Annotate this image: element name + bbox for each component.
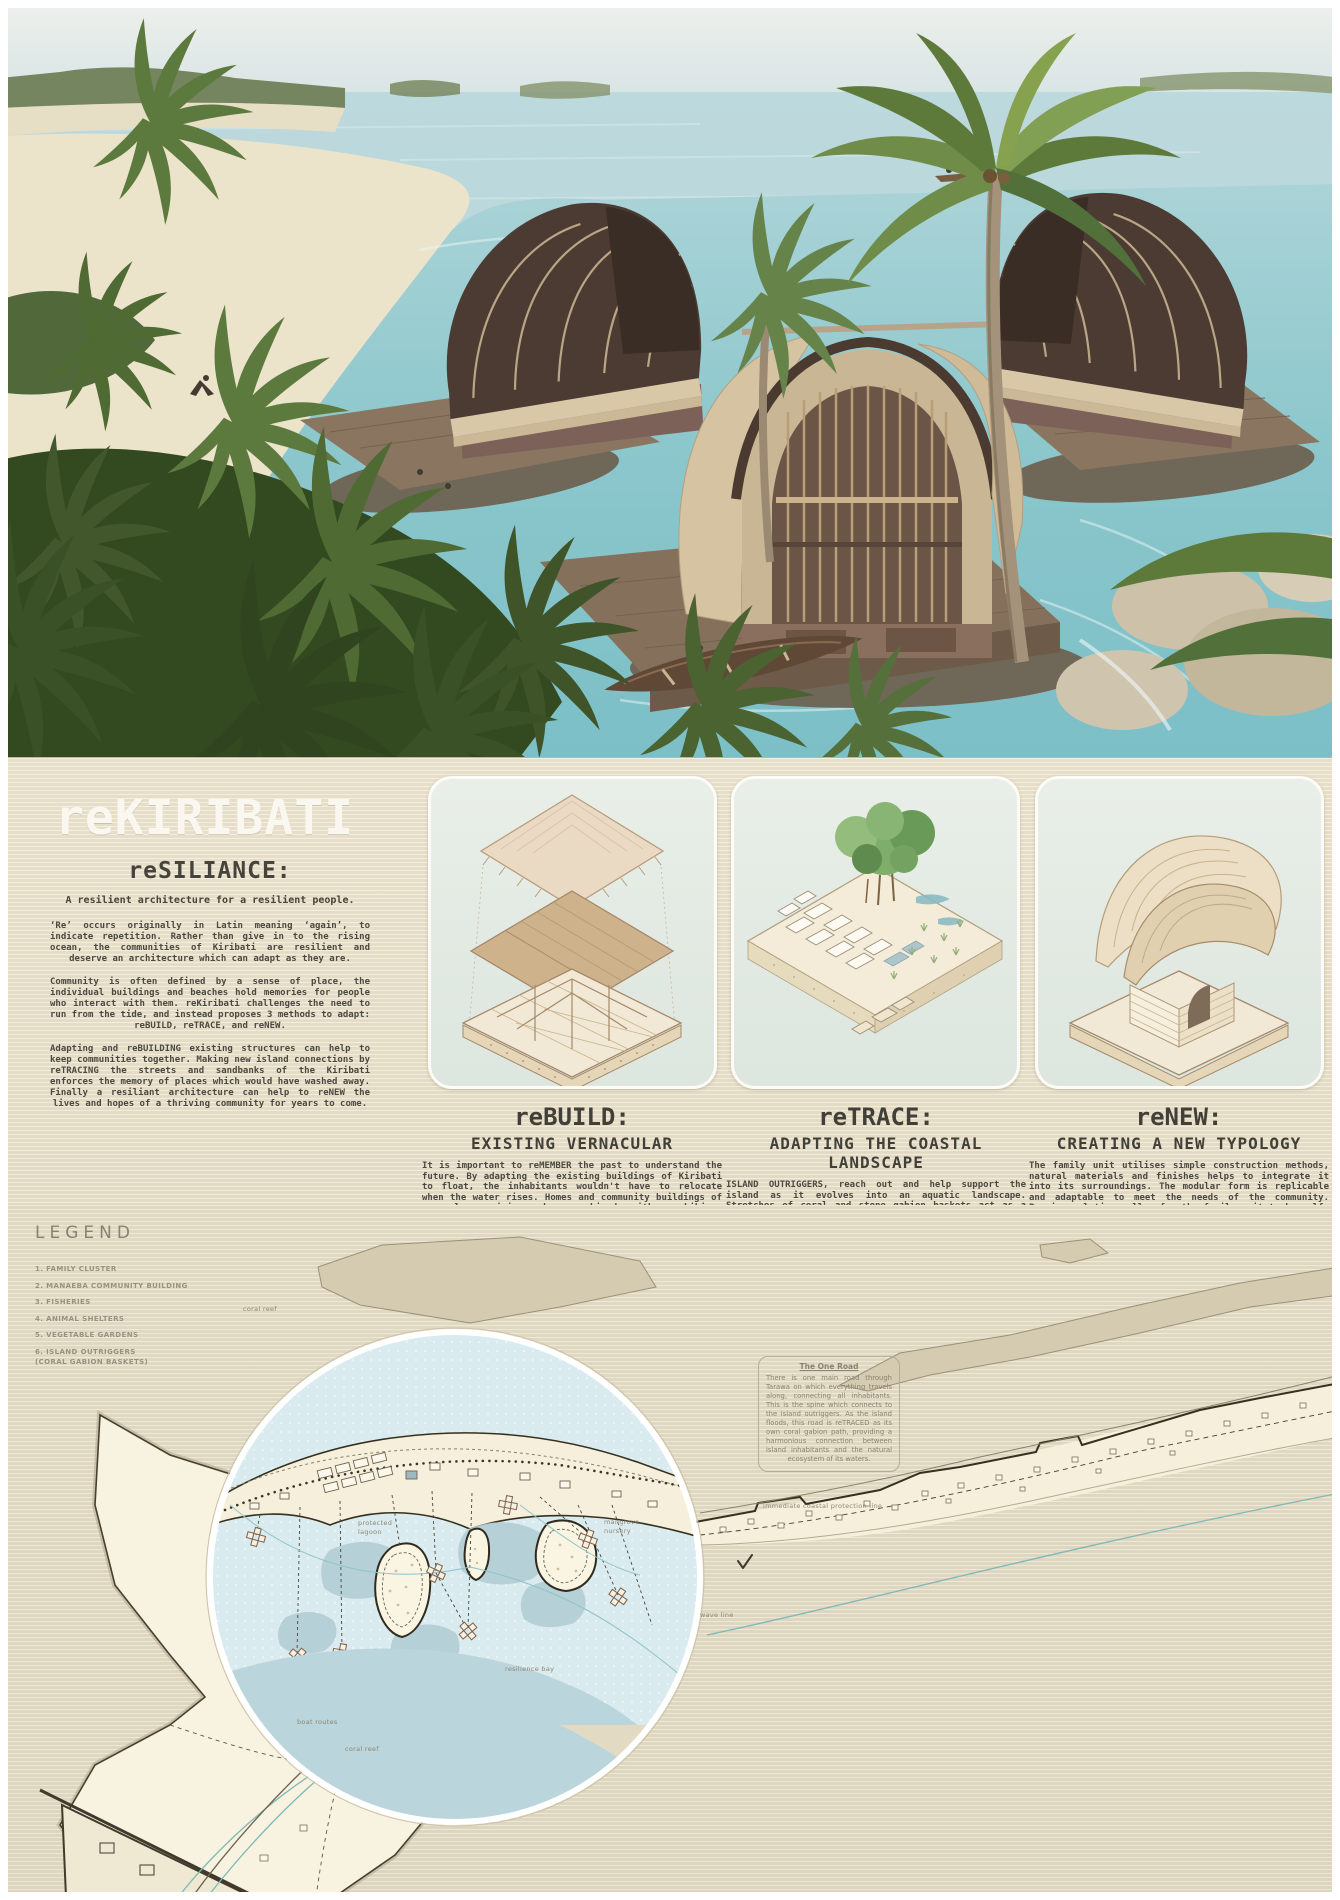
hero-illustration (0, 0, 1340, 757)
competition-board: reKIRIBATI reSILIANCE: A resilient archi… (0, 0, 1340, 1900)
one-road-note: The One Road There is one main road thro… (758, 1356, 900, 1472)
hero-rendering (0, 0, 1340, 757)
retrace-title: reTRACE: (726, 1103, 1026, 1131)
center-hut (679, 334, 1023, 658)
renew-panel (1035, 776, 1324, 1089)
retrace-panel (731, 776, 1020, 1089)
renew-title: reNEW: (1029, 1103, 1329, 1131)
legend-item-note: (CORAL GABION BASKETS) (35, 1358, 188, 1366)
legend-item: 6. ISLAND OUTRIGGERS (35, 1348, 188, 1356)
masterplan-map (0, 1205, 1340, 1900)
bird-mark (738, 1555, 752, 1568)
rebuild-title: reBUILD: (422, 1103, 722, 1131)
resilience-heading: reSILIANCE: (50, 858, 370, 884)
concept-section: reKIRIBATI reSILIANCE: A resilient archi… (0, 757, 1340, 1205)
retrace-isometric-diagram (734, 779, 1017, 1086)
legend-item: 1. FAMILY CLUSTER (35, 1265, 188, 1273)
rebuild-panel (428, 776, 717, 1089)
legend-title: LEGEND (35, 1223, 188, 1243)
intro-paragraph: Adapting and reBUILDING existing structu… (50, 1044, 370, 1110)
rebuild-axonometric-diagram (431, 779, 714, 1086)
curved-roof-shells (1096, 836, 1281, 985)
rebuild-subtitle: EXISTING VERNACULAR (422, 1134, 722, 1153)
intro-paragraph: Community is often defined by a sense of… (50, 977, 370, 1032)
legend-item: 3. FISHERIES (35, 1298, 188, 1306)
legend: LEGEND 1. FAMILY CLUSTER 2. MANAEBA COMM… (35, 1223, 188, 1366)
masterplan-section: LEGEND 1. FAMILY CLUSTER 2. MANAEBA COMM… (0, 1205, 1340, 1900)
frame-and-raft-layer (463, 969, 681, 1086)
renew-building-diagram (1038, 779, 1321, 1086)
one-road-body: There is one main road through Tarawa on… (766, 1374, 892, 1464)
legend-item: 2. MANAEBA COMMUNITY BUILDING (35, 1282, 188, 1290)
legend-item: 5. VEGETABLE GARDENS (35, 1331, 188, 1339)
renew-subtitle: CREATING A NEW TYPOLOGY (1029, 1134, 1329, 1153)
retrace-subtitle: ADAPTING THE COASTAL LANDSCAPE (726, 1134, 1026, 1172)
intro-column: reSILIANCE: A resilient architecture for… (50, 858, 370, 1122)
page-title: reKIRIBATI (55, 790, 354, 846)
legend-item: 4. ANIMAL SHELTERS (35, 1315, 188, 1323)
intro-paragraph: ‘Re’ occurs originally in Latin meaning … (50, 921, 370, 965)
one-road-title: The One Road (766, 1362, 892, 1371)
resilience-subheading: A resilient architecture for a resilient… (50, 895, 370, 906)
